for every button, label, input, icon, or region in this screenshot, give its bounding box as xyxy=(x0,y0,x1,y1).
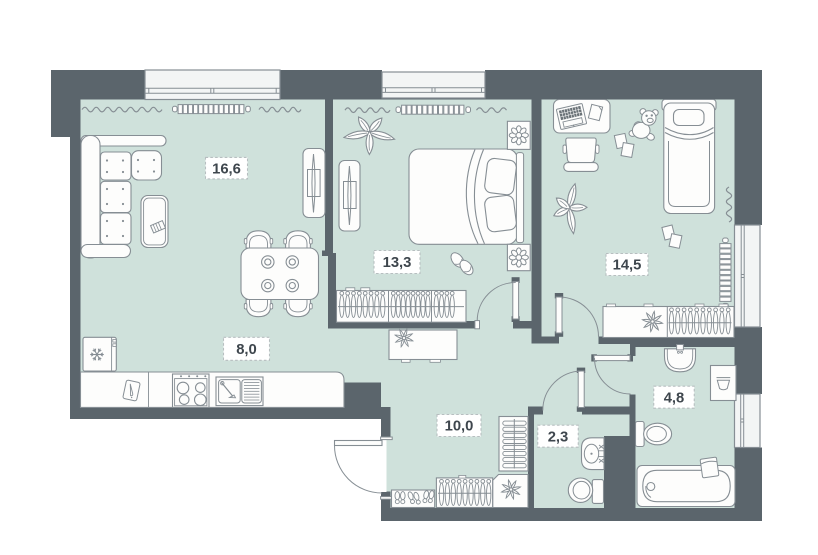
svg-text:4,8: 4,8 xyxy=(664,390,685,406)
svg-text:8,0: 8,0 xyxy=(236,342,257,358)
svg-text:14,5: 14,5 xyxy=(613,258,642,274)
svg-text:10,0: 10,0 xyxy=(445,419,474,435)
svg-text:16,6: 16,6 xyxy=(212,161,241,177)
svg-text:2,3: 2,3 xyxy=(548,429,569,445)
svg-text:13,3: 13,3 xyxy=(383,255,412,271)
